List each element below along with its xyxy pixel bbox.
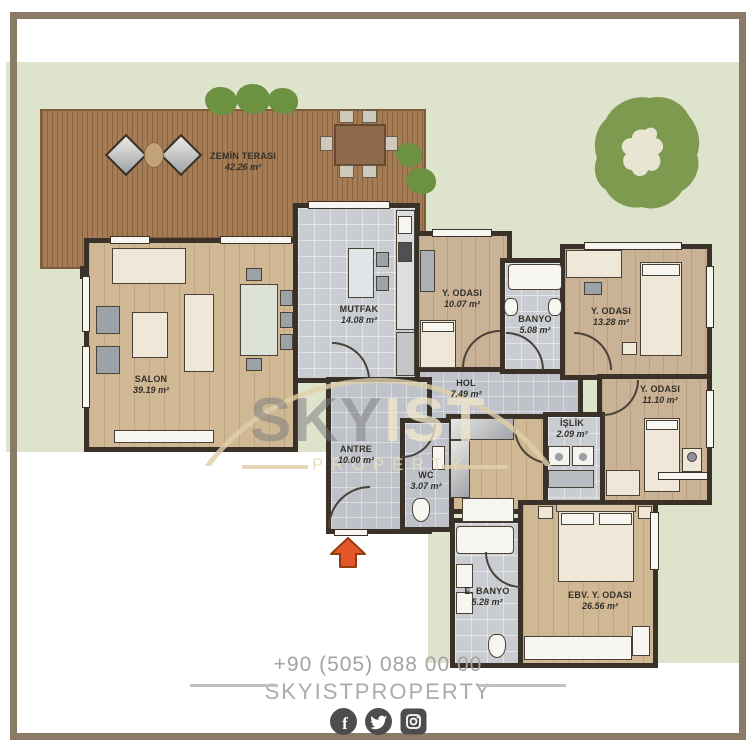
room-label-banyo: BANYO 5.08 m² (506, 314, 564, 336)
window (584, 242, 682, 250)
twitter-icon (365, 708, 392, 735)
wardrobe (450, 418, 514, 440)
wardrobe (450, 440, 470, 498)
deck-dining-table (334, 124, 386, 166)
toilet (412, 498, 430, 522)
window (650, 512, 659, 570)
window (706, 390, 714, 448)
chair (376, 276, 389, 291)
entrance-door-gap (334, 529, 368, 536)
headboard (556, 504, 636, 512)
sink (398, 216, 412, 234)
deck-chair (362, 110, 377, 123)
shelf (548, 470, 594, 488)
window (82, 276, 90, 332)
svg-text:f: f (342, 714, 348, 733)
sofa (112, 248, 186, 284)
room-label-hol: HOL 7.49 m² (440, 378, 492, 400)
window (82, 346, 90, 408)
sofa (184, 294, 214, 372)
bed (640, 262, 682, 356)
armchair (96, 306, 120, 334)
room-label-terrace: ZEMİN TERASI 42.26 m² (193, 151, 293, 173)
deck-chair (339, 110, 354, 123)
desk (420, 250, 435, 292)
divider-line-left (190, 684, 278, 687)
chair (246, 268, 262, 281)
chair (280, 334, 293, 350)
dining-table (240, 284, 278, 356)
room-label-ebanyo: E. BANYO 5.28 m² (452, 586, 522, 608)
chair (280, 290, 293, 306)
bush (205, 87, 237, 115)
deck-chair (339, 165, 354, 178)
chair (280, 312, 293, 328)
window (432, 229, 492, 237)
instagram-icon (400, 708, 427, 735)
tree (590, 92, 708, 216)
wardrobe (606, 470, 640, 496)
room-label-yatak1: Y. ODASI 10.07 m² (430, 288, 494, 310)
nightstand (622, 342, 637, 355)
armchair (96, 346, 120, 374)
coffee-table (132, 312, 168, 358)
room-label-islik: İŞLİK 2.09 m² (540, 418, 604, 440)
bush (236, 84, 270, 114)
deck-chair (385, 136, 398, 151)
brand-name: SKYISTPROPERTY (128, 679, 628, 705)
pillow (646, 420, 678, 430)
washing-machine (572, 446, 594, 466)
bush (268, 88, 298, 114)
deck-chair (320, 136, 333, 151)
window (308, 201, 390, 209)
dresser (632, 626, 650, 656)
window (110, 236, 150, 244)
watermark-line-left (242, 465, 308, 469)
cabinet (462, 498, 514, 522)
window (220, 236, 292, 244)
room-label-salon: SALON 39.19 m² (108, 374, 194, 396)
washbasin (432, 446, 445, 470)
divider-line-right (478, 684, 566, 687)
room-label-antre: ANTRE 10.00 m² (322, 444, 390, 466)
room-label-yatak2: Y. ODASI 13.28 m² (578, 306, 644, 328)
kitchen-table (348, 248, 374, 298)
bathtub (456, 526, 514, 554)
deck-chair (362, 165, 377, 178)
bush (396, 143, 422, 167)
lamp (687, 452, 697, 462)
social-icons: f (128, 708, 628, 735)
bush (406, 168, 436, 194)
pillow (599, 513, 632, 525)
room-label-ebeveyn: EBV. Y. ODASI 26.56 m² (548, 590, 652, 612)
chair (246, 358, 262, 371)
pillow (422, 322, 454, 332)
room-label-wc: WC 3.07 m² (400, 470, 452, 492)
stove (398, 242, 412, 262)
washbasin (456, 564, 473, 588)
dresser (584, 282, 602, 295)
bathtub (508, 264, 562, 290)
pillow (561, 513, 594, 525)
window (706, 266, 714, 328)
nightstand (538, 506, 553, 519)
chair (376, 252, 389, 267)
kitchen-cabinet (396, 332, 415, 376)
washing-machine (548, 446, 570, 466)
pillow (642, 264, 680, 276)
room-label-mutfak: MUTFAK 14.08 m² (328, 304, 390, 326)
wardrobe (566, 250, 622, 278)
floor-plan-flyer: ZEMİN TERASI 42.26 m² (0, 0, 756, 756)
facebook-icon: f (330, 708, 357, 735)
round-table (144, 142, 164, 168)
tv-unit (114, 430, 214, 443)
entrance-arrow (329, 536, 367, 570)
window (658, 472, 708, 480)
phone-number: +90 (505) 088 00 00 (128, 653, 628, 677)
room-label-yatak3: Y. ODASI 11.10 m² (626, 384, 694, 406)
